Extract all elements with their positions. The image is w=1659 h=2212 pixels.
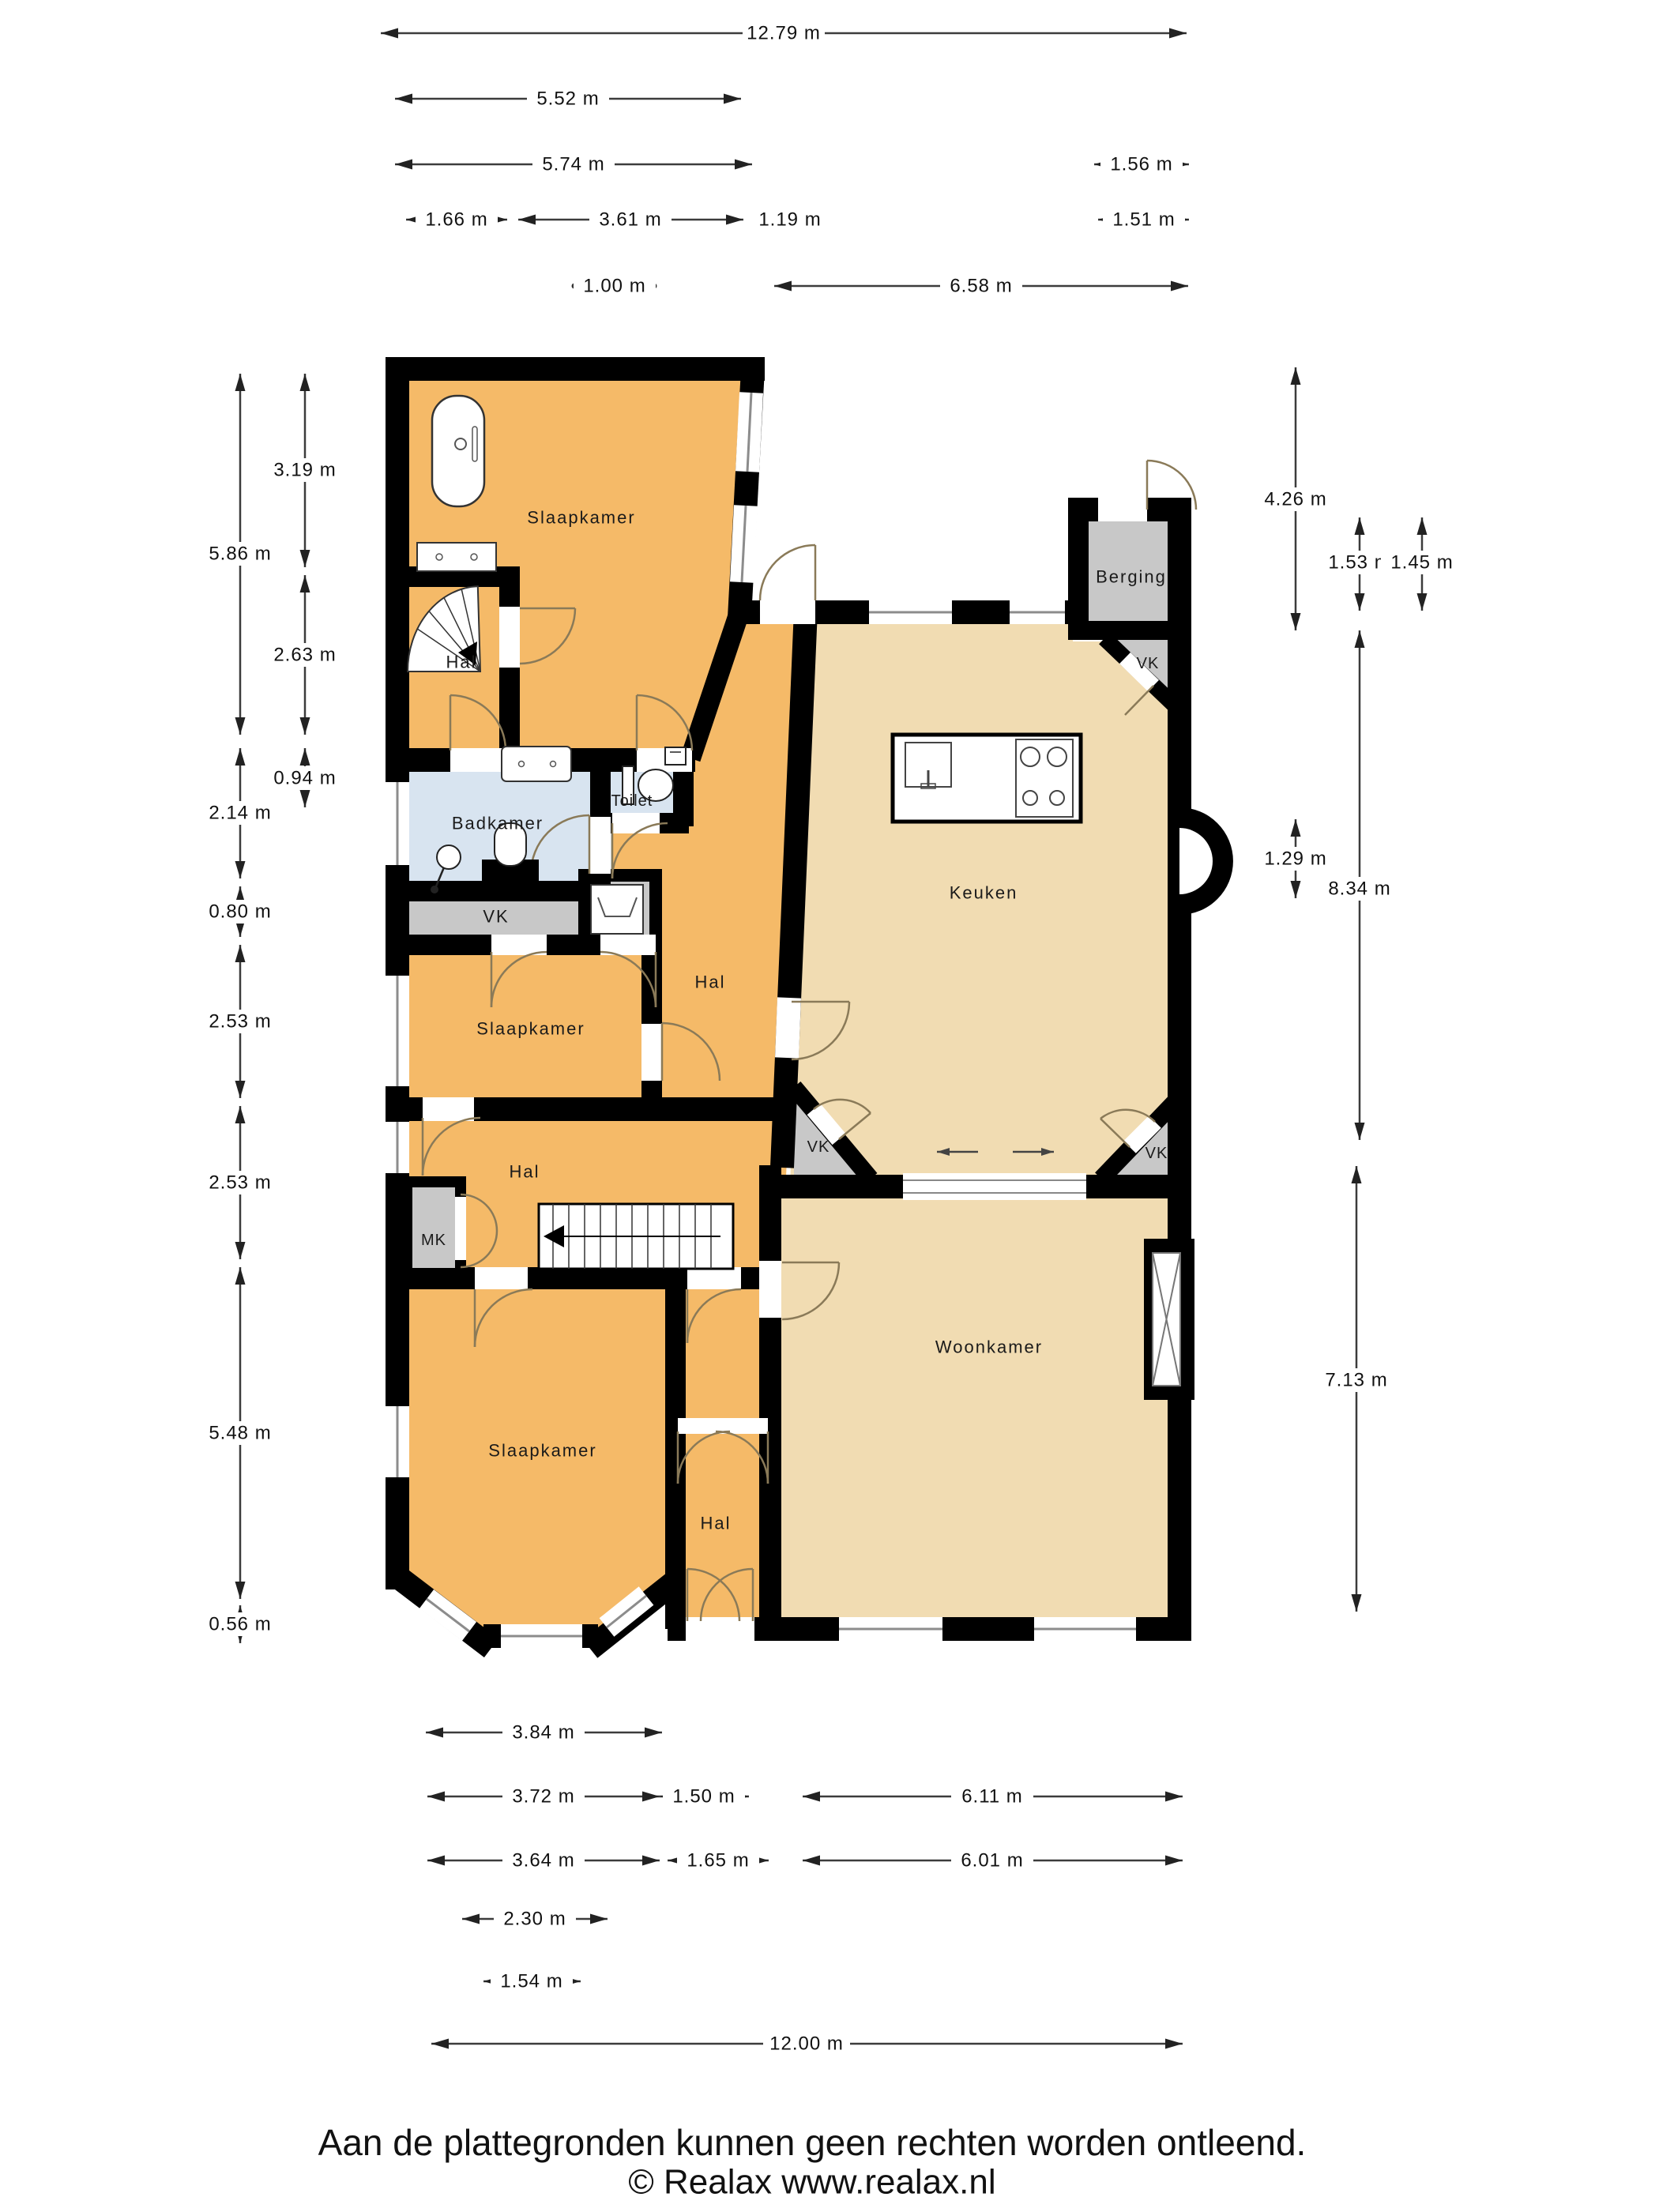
svg-text:5.74 m: 5.74 m — [542, 154, 604, 175]
dim: 3.64 m — [427, 1849, 660, 1872]
svg-text:0.94 m: 0.94 m — [273, 768, 336, 789]
dim: 4.26 m — [1255, 367, 1337, 630]
svg-text:3.84 m: 3.84 m — [512, 1722, 574, 1744]
dim: 0.56 m — [199, 1605, 281, 1643]
label-vk-left: VK — [483, 907, 509, 927]
dim: 7.13 m — [1315, 1166, 1398, 1612]
dim: 3.61 m — [518, 208, 743, 231]
straight-stairs-icon — [539, 1204, 733, 1269]
svg-text:5.52 m: 5.52 m — [536, 88, 599, 110]
label-woonkamer: Woonkamer — [935, 1337, 1043, 1357]
footer-disclaimer: Aan de plattegronden kunnen geen rechten… — [318, 2122, 1307, 2163]
svg-text:12.00 m: 12.00 m — [769, 2033, 844, 2055]
svg-text:3.61 m: 3.61 m — [599, 209, 661, 231]
floor-plan-svg: Slaapkamer Hal Badkamer Toilet VK Slaapk… — [0, 0, 1659, 2212]
svg-text:2.30 m: 2.30 m — [503, 1909, 566, 1930]
dim: 0.80 m — [199, 886, 281, 937]
svg-text:12.79 m: 12.79 m — [747, 23, 821, 44]
svg-text:1.29 m: 1.29 m — [1264, 848, 1326, 870]
svg-text:2.53 m: 2.53 m — [209, 1011, 271, 1033]
label-berging: Berging — [1096, 567, 1167, 587]
svg-text:6.11 m: 6.11 m — [961, 1786, 1023, 1808]
label-mk: MK — [421, 1232, 446, 1249]
svg-text:1.00 m: 1.00 m — [583, 276, 645, 297]
label-slaapkamer-top: Slaapkamer — [527, 508, 635, 528]
dim: 5.74 m — [395, 152, 752, 176]
svg-text:1.54 m: 1.54 m — [500, 1971, 562, 1992]
svg-text:3.72 m: 3.72 m — [512, 1786, 574, 1808]
footer: Aan de plattegronden kunnen geen rechten… — [318, 2122, 1307, 2202]
window — [747, 393, 751, 472]
dim: 12.00 m — [431, 2032, 1183, 2056]
svg-text:0.56 m: 0.56 m — [209, 1614, 271, 1635]
svg-text:5.48 m: 5.48 m — [209, 1423, 271, 1444]
floor-plan-page: Slaapkamer Hal Badkamer Toilet VK Slaapk… — [0, 0, 1659, 2212]
svg-text:3.64 m: 3.64 m — [512, 1850, 574, 1872]
dim: 2.53 m — [199, 945, 281, 1098]
dimensions-left: 3.19 m 5.86 m 2.63 m 0.94 m 2.14 m 0.80 … — [199, 374, 346, 1643]
label-toilet: Toilet — [611, 792, 653, 810]
svg-text:1.45 m: 1.45 m — [1390, 552, 1453, 574]
svg-text:1.51 m: 1.51 m — [1112, 209, 1175, 231]
label-hal-bottom: Hal — [700, 1514, 731, 1533]
svg-text:1.65 m: 1.65 m — [687, 1850, 749, 1872]
svg-text:4.26 m: 4.26 m — [1264, 489, 1326, 510]
label-vk-berging: VK — [1137, 655, 1160, 672]
label-hal-diagonal: Hal — [694, 972, 725, 992]
mk-closet-border — [407, 1182, 461, 1273]
dim: 6.11 m — [803, 1785, 1183, 1808]
room-woonkamer — [778, 1183, 1176, 1632]
svg-text:0.80 m: 0.80 m — [209, 901, 271, 923]
label-badkamer: Badkamer — [452, 814, 544, 833]
dim: 1.65 m — [668, 1849, 769, 1872]
dim: 3.19 m — [264, 374, 346, 567]
dim: 6.01 m — [803, 1849, 1183, 1872]
label-slaapkamer-mid: Slaapkamer — [476, 1019, 585, 1039]
svg-text:2.53 m: 2.53 m — [209, 1172, 271, 1194]
svg-text:6.58 m: 6.58 m — [950, 276, 1012, 297]
dim: 1.45 m — [1381, 517, 1463, 611]
dim: 1.50 m — [660, 1785, 749, 1808]
bathtub-icon — [432, 396, 484, 506]
window — [742, 506, 746, 582]
dim: 12.79 m — [381, 21, 1187, 45]
kitchen-island-icon — [893, 735, 1081, 822]
vanity-icon — [502, 747, 571, 781]
dim: 1.54 m — [483, 1969, 581, 1993]
svg-text:1.66 m: 1.66 m — [425, 209, 487, 231]
dim: 5.52 m — [395, 87, 741, 111]
svg-text:5.86 m: 5.86 m — [209, 544, 271, 565]
dim: 5.86 m — [199, 374, 281, 735]
svg-text:1.56 m: 1.56 m — [1110, 154, 1172, 175]
dim: 2.30 m — [462, 1907, 608, 1931]
dim: 8.34 m — [1319, 630, 1401, 1140]
label-hal-top: Hal — [446, 653, 476, 672]
dim: 2.63 m — [264, 575, 346, 735]
svg-text:1.19 m: 1.19 m — [758, 209, 821, 231]
dimensions-right: 4.26 m 1.53 m 1.45 m 8.34 m 1.29 m 7.13 … — [1255, 367, 1463, 1612]
svg-text:3.19 m: 3.19 m — [273, 460, 336, 481]
svg-text:2.63 m: 2.63 m — [273, 645, 336, 666]
dim: 2.53 m — [199, 1106, 281, 1259]
label-vk-woonkamer-right: VK — [1145, 1145, 1168, 1162]
entrance-door — [760, 545, 815, 612]
washing-machine-icon — [591, 885, 643, 934]
dim: 1.51 m — [1098, 208, 1189, 231]
label-slaapkamer-bottom: Slaapkamer — [488, 1441, 596, 1461]
dim: 0.94 m — [264, 748, 346, 807]
dim: 1.19 m — [749, 208, 831, 231]
cabinet-icon — [417, 543, 496, 571]
dim: 1.00 m — [572, 274, 657, 298]
label-hal-mid: Hal — [509, 1162, 540, 1182]
svg-text:7.13 m: 7.13 m — [1325, 1370, 1387, 1391]
svg-text:2.14 m: 2.14 m — [209, 803, 271, 824]
dimensions-top: 12.79 m 5.52 m 5.74 m 1.56 m 1.66 m 3.61… — [381, 21, 1189, 298]
dim: 5.48 m — [199, 1267, 281, 1599]
label-keuken: Keuken — [950, 883, 1018, 903]
svg-text:8.34 m: 8.34 m — [1328, 878, 1390, 900]
dim: 1.66 m — [406, 208, 507, 231]
label-vk-woonkamer-left: VK — [807, 1138, 830, 1156]
dim: 6.58 m — [774, 274, 1188, 298]
dim: 3.72 m — [427, 1785, 660, 1808]
dim: 1.56 m — [1094, 152, 1189, 176]
footer-copyright: © Realax www.realax.nl — [628, 2163, 995, 2202]
dim: 3.84 m — [426, 1721, 662, 1744]
svg-text:1.50 m: 1.50 m — [672, 1786, 735, 1808]
dimensions-bottom: 3.84 m 3.72 m 1.50 m 6.11 m 3.64 m 1.65 … — [426, 1721, 1183, 2056]
svg-text:6.01 m: 6.01 m — [961, 1850, 1023, 1872]
